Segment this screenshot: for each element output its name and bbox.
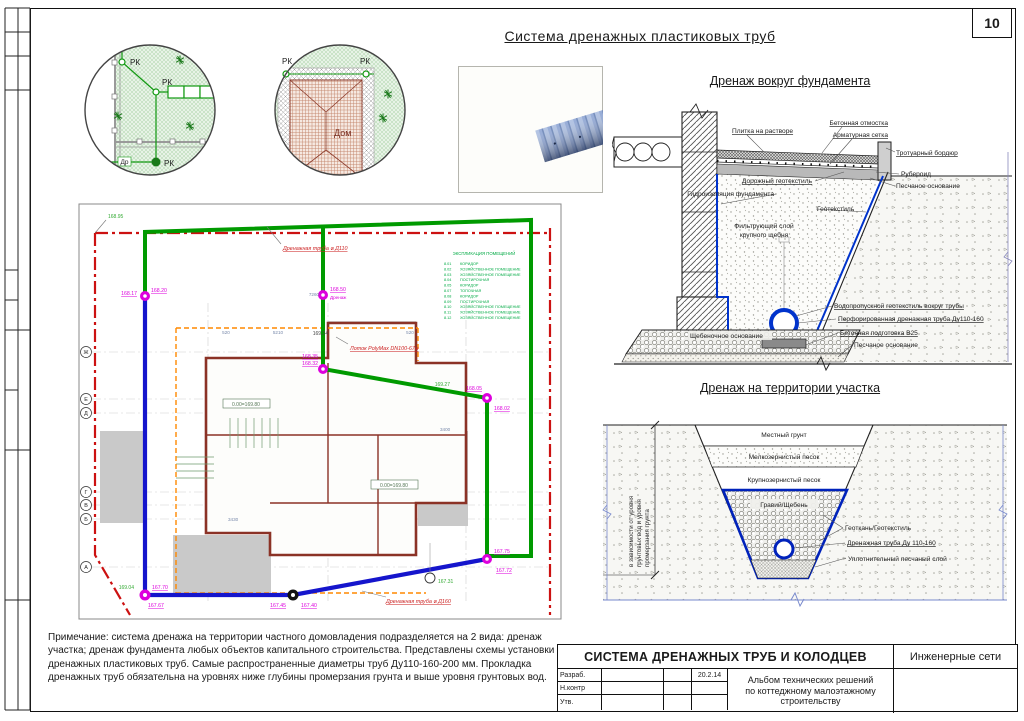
label-gravel: Гравий/Щебень <box>760 501 808 509</box>
label-filter-1: Фильтрующий слой <box>734 222 794 230</box>
title-block: СИСТЕМА ДРЕНАЖНЫХ ТРУБ И КОЛОДЦЕВ Инжене… <box>557 644 1018 712</box>
svg-text:167.31: 167.31 <box>438 579 454 585</box>
label-pipe: Дренажная труба Ду 110-160 <box>847 539 936 547</box>
binding-margin <box>0 0 34 721</box>
signature-cell <box>602 695 664 710</box>
label-vodoprop: Водопропускной геотекстиль вокруг трубы <box>834 302 964 310</box>
label-beton: Бетонная подготовка В25 <box>840 330 918 337</box>
foundation-section-title: Дренаж вокруг фундамента <box>640 74 940 88</box>
label-fine-sand: Мелкозернистый песок <box>749 453 820 461</box>
label-perf: Перфорированная дренажная труба Ду110-16… <box>838 315 984 323</box>
label-tile: Плитка на растворе <box>732 128 793 135</box>
pipe110-label: Дренажная труба ⌀ Д110 <box>282 246 348 252</box>
rk-label-2: РК <box>162 78 172 87</box>
drenazh-label: Дренаж <box>330 295 347 300</box>
svg-text:168.95: 168.95 <box>108 214 124 220</box>
label-waterproof: Гидроизоляция фундамента <box>687 191 774 198</box>
svg-text:168.35: 168.35 <box>302 354 318 360</box>
manhole-open-1 <box>119 59 125 65</box>
svg-text:Е: Е <box>84 397 88 403</box>
svg-text:Д: Д <box>84 411 88 417</box>
territory-graphics <box>603 421 1007 606</box>
svg-text:3400: 3400 <box>440 427 451 432</box>
title-block-category: Инженерные сети <box>894 645 1017 669</box>
page-title: Система дренажных пластиковых труб <box>430 28 850 44</box>
svg-text:8.05: 8.05 <box>444 284 451 288</box>
rk-label-right: РК <box>360 57 370 66</box>
rk-label-1: РК <box>130 58 140 67</box>
rk-label-left: РК <box>282 57 292 66</box>
label-bordur: Тротуарный бордюр <box>896 149 958 157</box>
detail-circle-house: РК РК Дом <box>272 38 408 178</box>
signature-cell <box>664 695 692 710</box>
svg-text:167.40: 167.40 <box>301 603 317 609</box>
svg-text:168.02: 168.02 <box>494 406 510 412</box>
title-block-row-utv: Утв. <box>558 695 602 710</box>
svg-text:169.24: 169.24 <box>313 331 329 337</box>
svg-text:ТОПОЧНАЯ: ТОПОЧНАЯ <box>460 289 482 293</box>
lotok-label: Лоток PolyMax DN100-67м <box>349 346 419 352</box>
svg-text:Г: Г <box>85 490 88 496</box>
svg-text:ПОСТИРОЧНАЯ: ПОСТИРОЧНАЯ <box>460 300 489 304</box>
date-cell <box>692 682 728 695</box>
svg-text:167.67: 167.67 <box>148 603 164 609</box>
svg-text:167.70: 167.70 <box>152 585 168 591</box>
yard-detail-graphics <box>82 38 218 178</box>
svg-text:0.00=169.80: 0.00=169.80 <box>232 402 260 408</box>
label-geo: Геоткань/Геотекстиль <box>845 525 912 532</box>
site-plan: Ж Е Д Г В Б А 168.20 168.17 168.50 Дрена… <box>78 203 562 620</box>
svg-text:8.12: 8.12 <box>444 316 451 320</box>
date-cell <box>692 695 728 710</box>
label-seal-sand: Уплотнительный песчаный слой <box>848 555 947 563</box>
label-sand-top: Песчаное основание <box>896 183 960 190</box>
svg-text:8.08: 8.08 <box>444 294 451 298</box>
label-road-geo: Дорожный геотекстиль <box>742 177 813 185</box>
title-block-date: 20.2.14 <box>692 669 728 682</box>
svg-text:5210: 5210 <box>273 330 284 335</box>
foundation-drawing: Плитка на растворе Бетонная отмостка Арм… <box>612 92 1015 372</box>
svg-text:ПОСТИРОЧНАЯ: ПОСТИРОЧНАЯ <box>460 278 489 282</box>
signature-cell <box>602 669 664 682</box>
svg-text:167.45: 167.45 <box>270 603 286 609</box>
house-label: Дом <box>334 128 351 138</box>
label-otmostka: Бетонная отмостка <box>830 120 889 127</box>
svg-text:ХОЗЯЙСТВЕННОЕ ПОМЕЩЕНИЕ: ХОЗЯЙСТВЕННОЕ ПОМЕЩЕНИЕ <box>460 273 521 277</box>
svg-text:169.27: 169.27 <box>435 382 451 388</box>
label-shcheben: Щебеночное основание <box>690 332 763 340</box>
title-block-row-nkontr: Н.контр <box>558 682 602 695</box>
svg-text:8.01: 8.01 <box>444 262 451 266</box>
svg-text:168.05: 168.05 <box>466 386 482 392</box>
title-block-album: Альбом технических решений по коттеджном… <box>728 669 894 713</box>
svg-text:В: В <box>84 503 88 509</box>
svg-text:КОРИДОР: КОРИДОР <box>460 284 479 288</box>
label-sand-bottom: Песчаное основание <box>854 342 918 349</box>
label-coarse-sand: Крупнозернистый песок <box>748 476 821 484</box>
house-detail-graphics <box>272 38 408 178</box>
sheet-number-box: 10 <box>972 8 1012 38</box>
svg-text:169.04: 169.04 <box>119 585 135 591</box>
territory-drawing: Местный грунт Мелкозернистый песок Крупн… <box>595 415 1015 615</box>
pipe160-label: Дренажная труба ⌀ Д160 <box>385 599 451 605</box>
depth-note-3: промерзания грунта <box>644 509 651 567</box>
svg-text:КОРИДОР: КОРИДОР <box>460 262 479 266</box>
svg-text:8.03: 8.03 <box>444 273 451 277</box>
manhole-open-right <box>363 71 369 77</box>
svg-text:167.75: 167.75 <box>494 549 510 555</box>
svg-text:Ж: Ж <box>84 350 89 356</box>
svg-text:8.04: 8.04 <box>444 278 451 282</box>
svg-text:168.50: 168.50 <box>330 287 346 293</box>
depth-note-2: грунтовых вод и уровня <box>636 499 643 567</box>
label-geotextile: Геотекстиль <box>817 206 855 213</box>
svg-text:КОРИДОР: КОРИДОР <box>460 294 479 298</box>
svg-text:ХОЗЯЙСТВЕННОЕ ПОМЕЩЕНИЕ: ХОЗЯЙСТВЕННОЕ ПОМЕЩЕНИЕ <box>460 305 521 309</box>
sheet-number: 10 <box>984 15 1000 31</box>
label-setka: Арматурная сетка <box>833 132 889 139</box>
signature-cell <box>602 682 664 695</box>
manhole-filled <box>152 158 161 167</box>
svg-text:7260: 7260 <box>309 292 320 297</box>
svg-text:167.72: 167.72 <box>496 568 512 574</box>
svg-text:8.11: 8.11 <box>444 311 451 315</box>
svg-text:3430: 3430 <box>228 517 239 522</box>
territory-section-title: Дренаж на территории участка <box>640 381 940 395</box>
label-filter-2: крупного щебня <box>740 231 789 239</box>
svg-text:А: А <box>84 565 88 571</box>
drawing-sheet: 10 Система дренажных пластиковых труб <box>0 0 1024 721</box>
foundation-graphics <box>612 104 1012 370</box>
svg-text:520: 520 <box>222 330 230 335</box>
note-text: Примечание: система дренажа на территори… <box>48 631 556 684</box>
depth-note-1: в зависимости от уровня <box>628 496 635 567</box>
dr-label: Др <box>120 159 128 166</box>
svg-text:8.07: 8.07 <box>444 289 451 293</box>
title-block-row-razrab: Разраб. <box>558 669 602 682</box>
title-block-empty <box>894 669 1017 713</box>
svg-text:Б: Б <box>84 517 88 523</box>
title-block-doc-title: СИСТЕМА ДРЕНАЖНЫХ ТРУБ И КОЛОДЦЕВ <box>558 645 894 669</box>
svg-text:0.00=169.80: 0.00=169.80 <box>380 483 408 489</box>
svg-text:8.10: 8.10 <box>444 305 451 309</box>
rk-label-3: РК <box>164 159 174 168</box>
svg-text:8.09: 8.09 <box>444 300 451 304</box>
signature-cell <box>664 682 692 695</box>
explication-title: ЭКСПЛИКАЦИЯ ПОМЕЩЕНИЙ <box>453 251 516 256</box>
svg-text:ХОЗЯЙСТВЕННОЕ ПОМЕЩЕНИЕ: ХОЗЯЙСТВЕННОЕ ПОМЕЩЕНИЕ <box>460 311 521 315</box>
svg-text:168.17: 168.17 <box>121 291 137 297</box>
svg-text:ХОЗЯЙСТВЕННОЕ ПОМЕЩЕНИЕ: ХОЗЯЙСТВЕННОЕ ПОМЕЩЕНИЕ <box>460 316 521 320</box>
svg-text:520: 520 <box>406 330 414 335</box>
manhole-open-2 <box>153 89 159 95</box>
signature-cell <box>664 669 692 682</box>
svg-text:168.20: 168.20 <box>151 288 167 294</box>
label-ruberoid: Рубероид <box>901 170 931 178</box>
svg-text:168.32: 168.32 <box>302 361 318 367</box>
label-local-soil: Местный грунт <box>761 431 806 439</box>
pipe-photo <box>458 66 603 193</box>
svg-text:8.02: 8.02 <box>444 267 451 271</box>
svg-text:ХОЗЯЙСТВЕННОЕ ПОМЕЩЕНИЕ: ХОЗЯЙСТВЕННОЕ ПОМЕЩЕНИЕ <box>460 267 521 271</box>
detail-circle-yard: Др РК РК РК <box>82 38 218 178</box>
